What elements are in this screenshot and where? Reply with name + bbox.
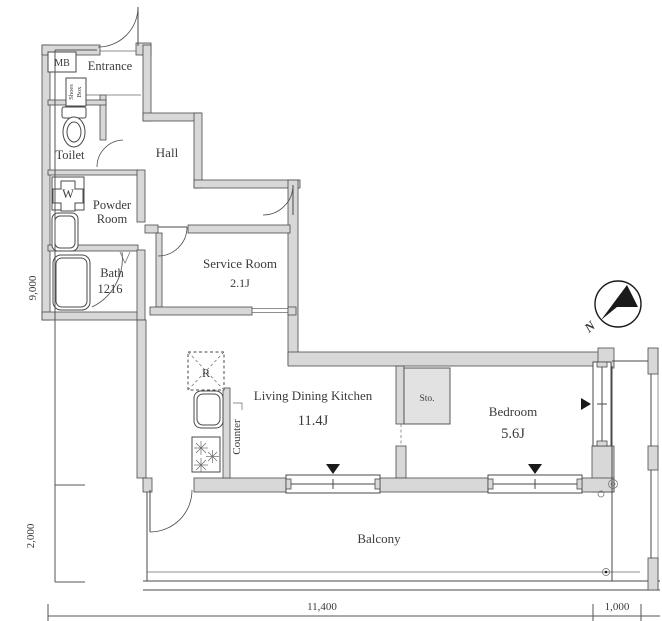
meter-box-label: MB (54, 58, 70, 69)
ldk-label: Living Dining Kitchen (254, 388, 373, 403)
floor-plan-page: Sto. (0, 0, 662, 621)
fridge-label: R (202, 366, 210, 380)
bathtub-icon (53, 255, 90, 310)
hall-label: Hall (156, 145, 179, 160)
bedroom-size-label: 5.6J (501, 426, 525, 442)
dim-height-main: 9,000 (27, 275, 39, 300)
floor-plan-svg: Sto. (0, 0, 662, 621)
counter-label: Counter (231, 419, 243, 455)
balcony-label: Balcony (357, 531, 401, 546)
compass-icon: N (581, 281, 641, 336)
powder-room-label-2: Room (97, 212, 128, 226)
storage-label: Sto. (419, 394, 434, 404)
ldk-window (286, 475, 380, 493)
toilet-door-arc (97, 140, 123, 167)
drain-icon (598, 480, 618, 576)
toilet-label: Toilet (56, 148, 86, 162)
stove-icon (192, 437, 220, 472)
service-room-size-label: 2.1J (230, 276, 250, 290)
entrance-door-arc (98, 7, 138, 51)
ldk-size-label: 11.4J (298, 413, 329, 429)
dim-width-main: 11,400 (307, 601, 337, 613)
toilet-fixture-icon (62, 107, 86, 147)
powder-sink-icon (52, 213, 78, 251)
washer-label: W (62, 187, 74, 201)
dim-height-balcony: 2,000 (25, 523, 37, 548)
service-room-sliding-door (252, 309, 288, 313)
shoes-box-label-2: Box (76, 86, 83, 98)
powder-room-label-1: Powder (93, 198, 132, 212)
storage-closet: Sto. (401, 368, 450, 446)
bedroom-label: Bedroom (489, 404, 537, 419)
bath-label: Bath (100, 266, 124, 280)
counter-leader (233, 403, 242, 410)
shoes-box-label-1: Shoes (68, 84, 75, 100)
entrance-label: Entrance (88, 59, 133, 73)
dimension-lines: 9,000 2,000 11,400 1,000 (25, 50, 660, 621)
bedroom-window (488, 475, 582, 493)
bath-size-label: 1216 (98, 282, 123, 296)
dim-width-side: 1,000 (605, 601, 630, 613)
service-room-label: Service Room (203, 256, 277, 271)
window-marker-down-ldk-icon (326, 464, 340, 474)
kitchen-sink-icon (194, 391, 223, 428)
bedroom-side-window (593, 362, 611, 446)
balcony-door-arc (150, 490, 192, 532)
compass-north-label: N (581, 317, 599, 336)
window-marker-down-bedroom-icon (528, 464, 542, 474)
window-marker-right-bedroom-icon (581, 398, 591, 410)
